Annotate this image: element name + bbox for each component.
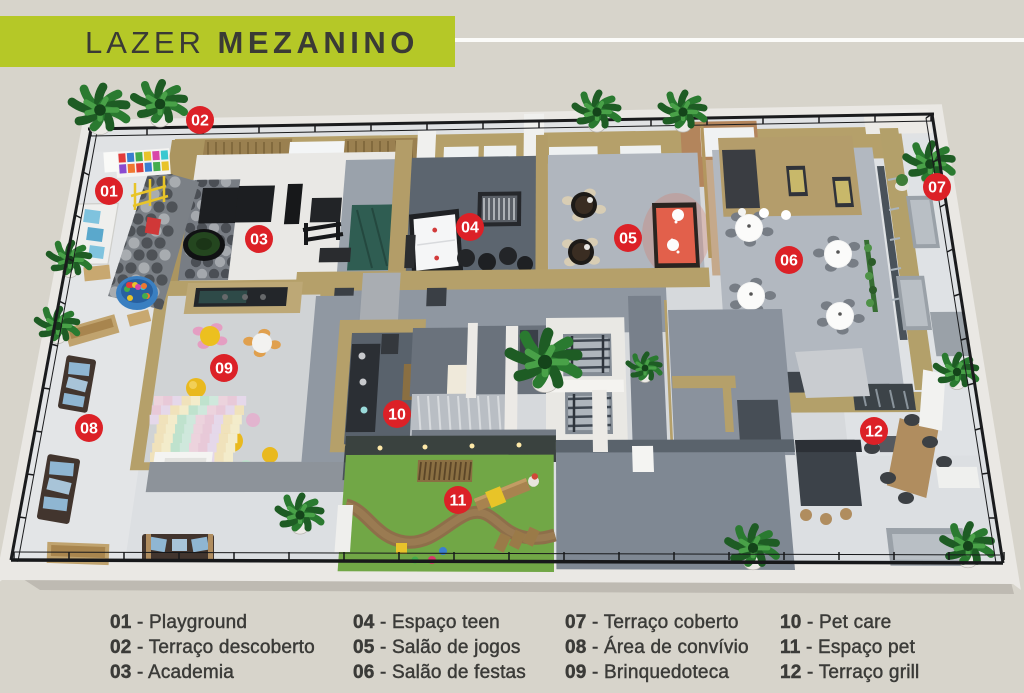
svg-text:03: 03 (250, 232, 268, 249)
svg-text:05: 05 (619, 231, 637, 248)
svg-text:02: 02 (191, 113, 209, 130)
svg-text:10 - Pet care: 10 - Pet care (780, 612, 891, 633)
svg-text:11 - Espaço pet: 11 - Espaço pet (780, 637, 916, 658)
svg-text:01: 01 (100, 184, 118, 201)
svg-text:06 - Salão de festas: 06 - Salão de festas (353, 662, 526, 683)
svg-text:LAZER MEZANINO: LAZER MEZANINO (85, 25, 419, 60)
svg-text:08: 08 (80, 421, 98, 438)
svg-text:04 - Espaço teen: 04 - Espaço teen (353, 612, 500, 633)
svg-text:09: 09 (215, 361, 233, 378)
svg-text:07: 07 (928, 180, 946, 197)
svg-text:08 - Área de convívio: 08 - Área de convívio (565, 637, 749, 658)
svg-text:12 - Terraço grill: 12 - Terraço grill (780, 662, 919, 683)
svg-text:05 - Salão de jogos: 05 - Salão de jogos (353, 637, 521, 658)
svg-text:11: 11 (450, 493, 467, 510)
svg-text:06: 06 (780, 253, 798, 270)
svg-text:10: 10 (388, 407, 406, 424)
svg-text:12: 12 (865, 424, 883, 441)
svg-text:02 - Terraço descoberto: 02 - Terraço descoberto (110, 637, 315, 658)
svg-text:09 - Brinquedoteca: 09 - Brinquedoteca (565, 662, 729, 683)
svg-text:04: 04 (461, 220, 479, 237)
svg-text:01 - Playground: 01 - Playground (110, 612, 247, 633)
svg-text:07 - Terraço coberto: 07 - Terraço coberto (565, 612, 739, 633)
svg-text:03 - Academia: 03 - Academia (110, 662, 234, 683)
